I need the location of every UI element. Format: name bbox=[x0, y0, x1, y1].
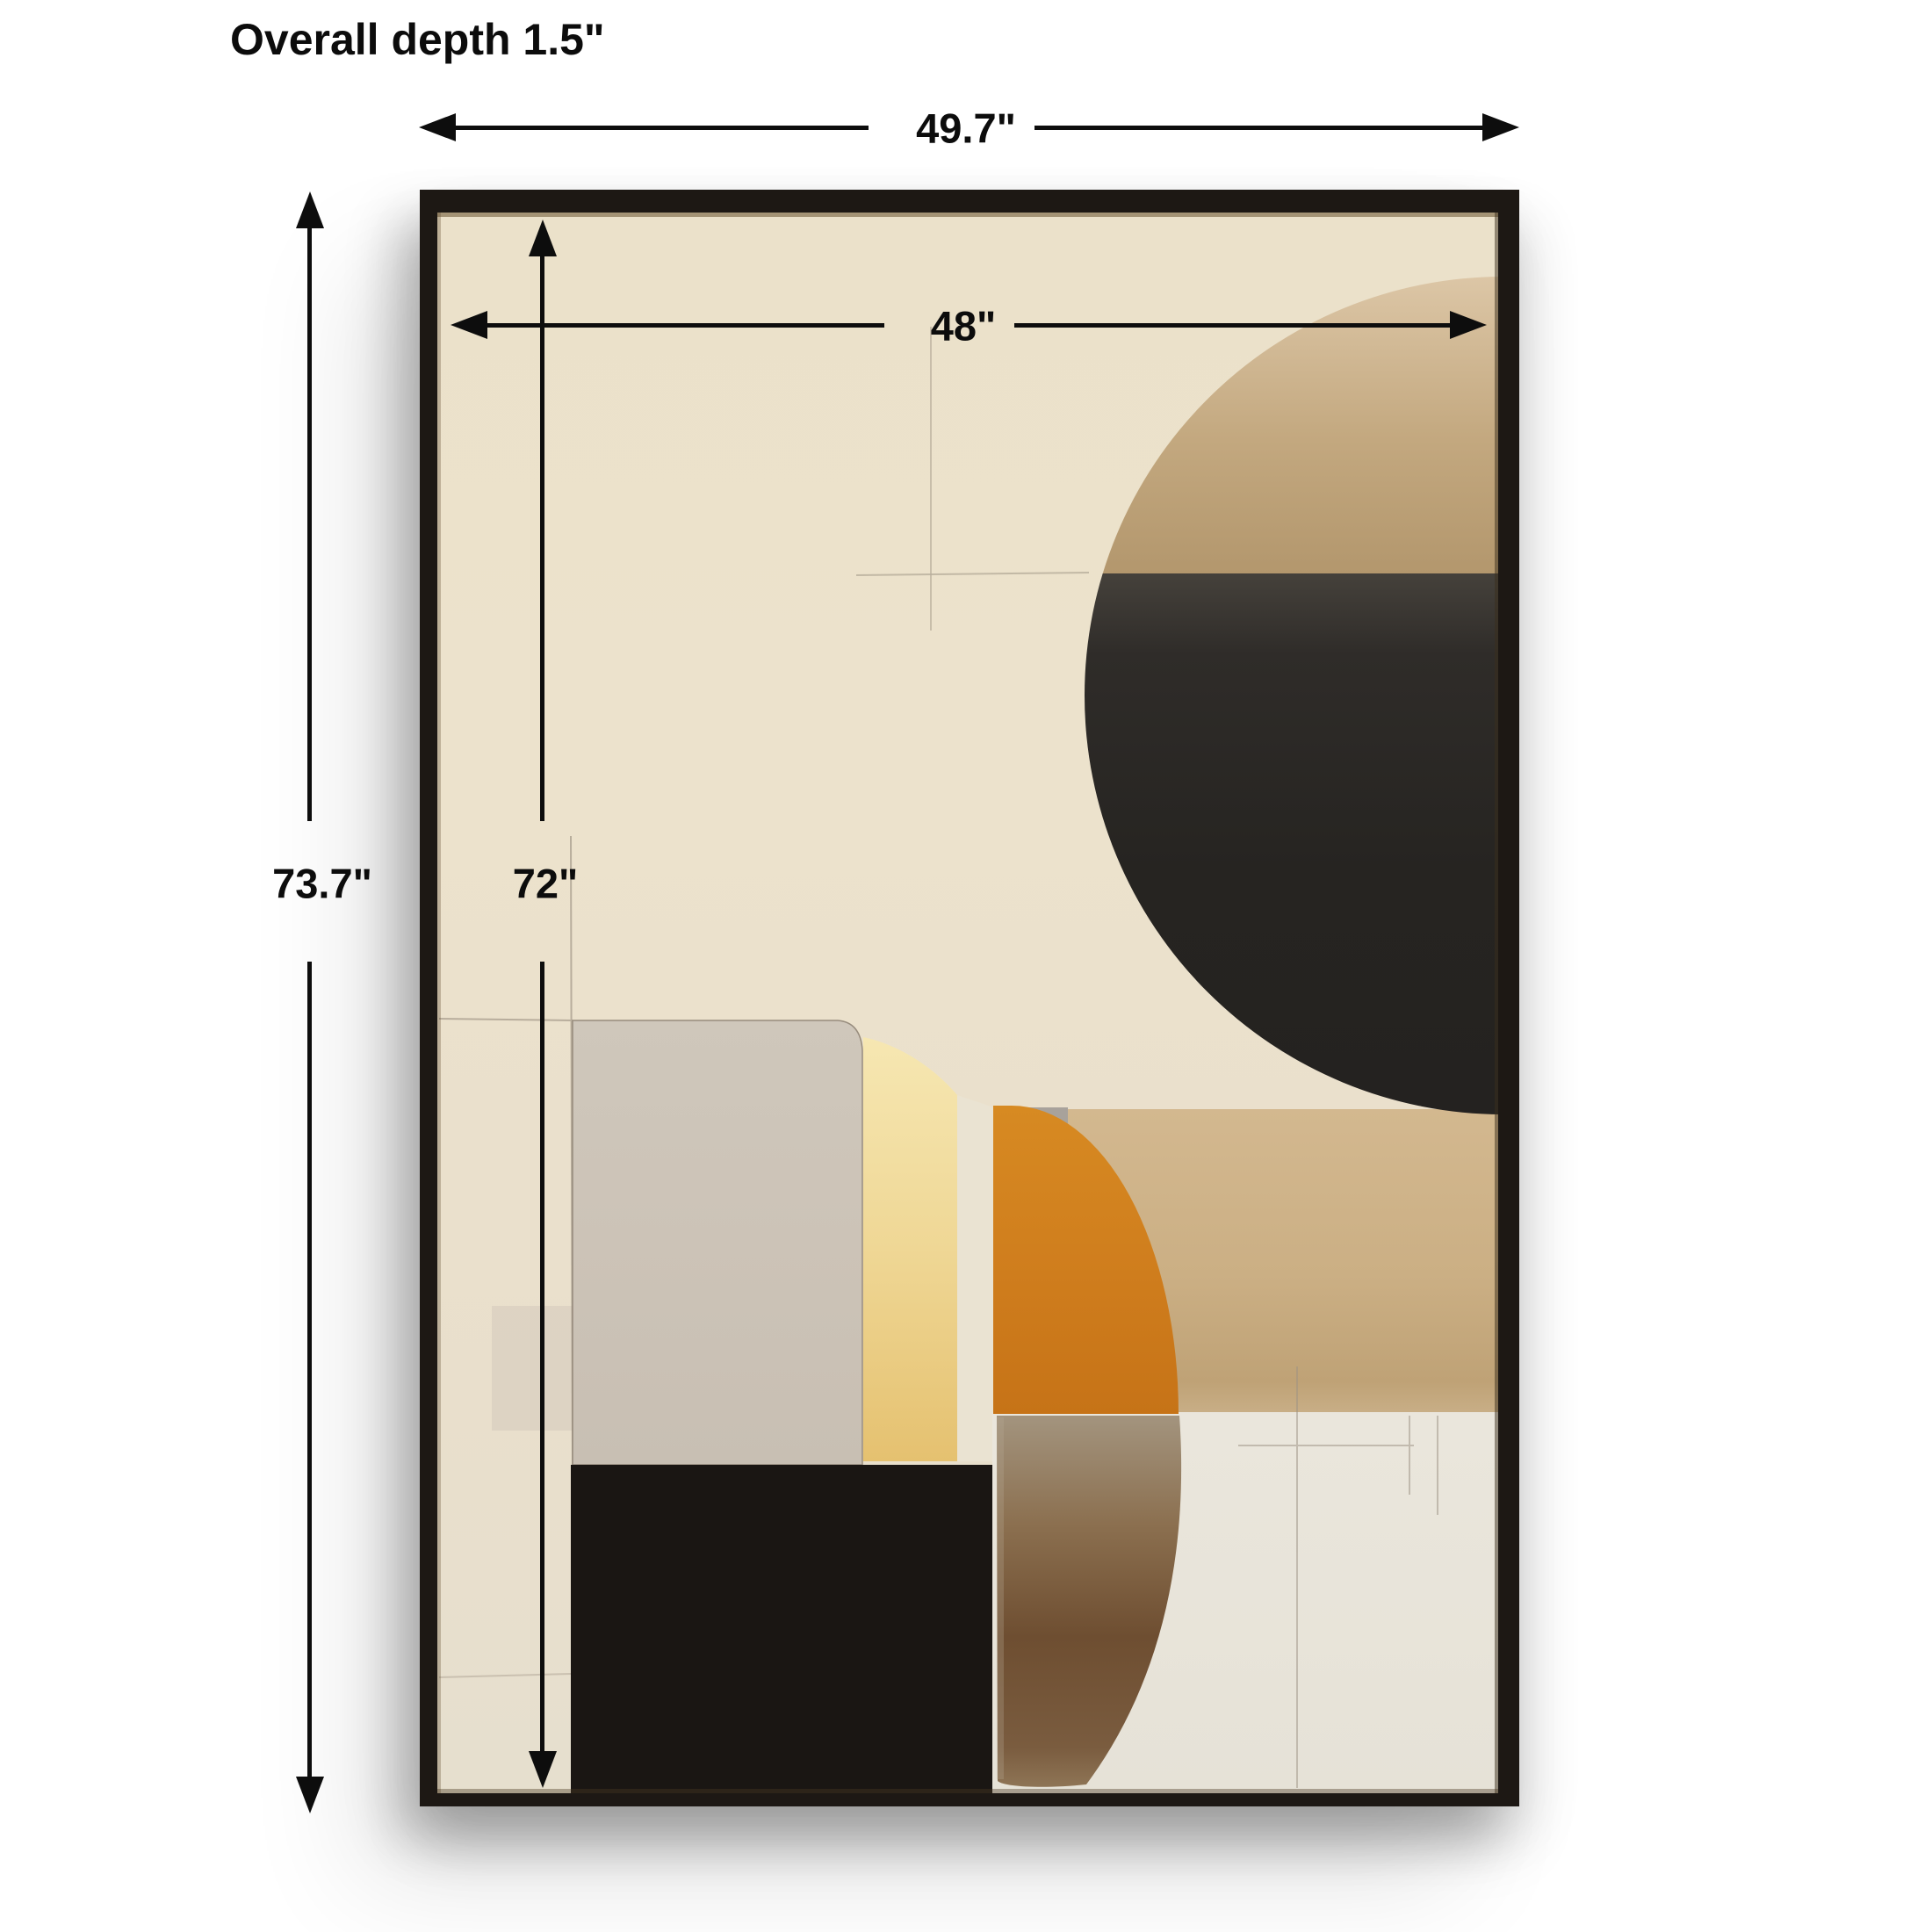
dimension-line bbox=[540, 962, 544, 1753]
dimension-line bbox=[307, 962, 312, 1778]
artwork-frame bbox=[420, 190, 1519, 1806]
dimension-line bbox=[1034, 126, 1493, 130]
dimension-line bbox=[307, 224, 312, 821]
inner-width-label: 48" bbox=[931, 302, 997, 350]
arrowhead-right-icon bbox=[1482, 113, 1519, 141]
greige-block bbox=[573, 1020, 862, 1465]
dimension-line bbox=[1014, 323, 1451, 328]
dimension-line bbox=[448, 126, 869, 130]
overall-depth-label: Overall depth 1.5" bbox=[230, 14, 605, 65]
black-block bbox=[571, 1465, 992, 1793]
abstract-painting bbox=[437, 213, 1498, 1793]
yellow-strip bbox=[863, 1037, 957, 1461]
pale-strip bbox=[957, 1095, 993, 1461]
product-dimension-diagram: Overall depth 1.5" 49.7" 48" 73.7" 72" bbox=[0, 0, 1932, 1932]
arrowhead-up-icon bbox=[296, 191, 324, 228]
arrowhead-right-icon bbox=[1450, 311, 1487, 339]
arrowhead-up-icon bbox=[529, 220, 557, 256]
arrowhead-down-icon bbox=[296, 1777, 324, 1813]
inner-height-label: 72" bbox=[513, 860, 579, 908]
left-column-patch bbox=[492, 1306, 573, 1431]
overall-width-label: 49.7" bbox=[916, 105, 1016, 153]
dimension-line bbox=[540, 252, 544, 821]
arrowhead-down-icon bbox=[529, 1751, 557, 1788]
artwork-canvas bbox=[437, 213, 1498, 1793]
overall-height-label: 73.7" bbox=[272, 860, 372, 908]
